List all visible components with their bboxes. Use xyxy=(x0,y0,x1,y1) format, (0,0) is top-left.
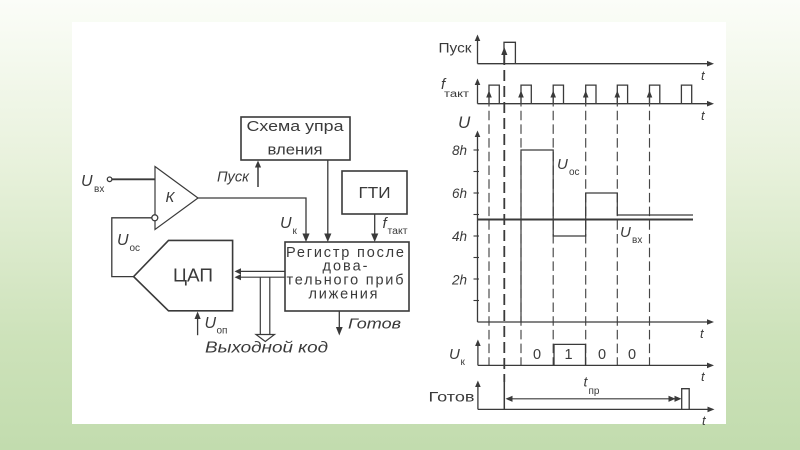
svg-text:U: U xyxy=(557,156,568,173)
svg-text:6h: 6h xyxy=(452,186,467,201)
svg-text:ГТИ: ГТИ xyxy=(359,185,391,202)
svg-text:U: U xyxy=(458,113,471,132)
svg-text:2h: 2h xyxy=(451,273,467,288)
svg-text:ЦАП: ЦАП xyxy=(173,266,213,286)
svg-text:вления: вления xyxy=(268,142,323,159)
svg-text:4h: 4h xyxy=(452,229,467,244)
svg-text:Схема упра: Схема упра xyxy=(247,118,345,135)
svg-text:1: 1 xyxy=(564,347,572,363)
svg-text:Выходной код: Выходной код xyxy=(205,340,328,357)
svg-text:вх: вх xyxy=(94,184,104,195)
svg-text:Готов: Готов xyxy=(429,389,475,405)
svg-text:8h: 8h xyxy=(452,143,467,158)
svg-text:К: К xyxy=(166,189,176,206)
svg-text:оп: оп xyxy=(217,326,228,337)
svg-text:лижения: лижения xyxy=(309,287,378,303)
svg-text:Готов: Готов xyxy=(348,317,402,333)
svg-text:U: U xyxy=(205,315,217,332)
svg-text:U: U xyxy=(117,232,129,249)
svg-text:такт: такт xyxy=(444,89,470,100)
svg-text:такт: такт xyxy=(388,226,408,237)
svg-text:U: U xyxy=(620,224,631,241)
svg-text:Пуск: Пуск xyxy=(439,41,472,56)
svg-text:0: 0 xyxy=(628,347,636,363)
svg-text:U: U xyxy=(449,346,460,363)
svg-text:вх: вх xyxy=(632,235,642,246)
svg-text:пр: пр xyxy=(589,386,600,397)
svg-text:к: к xyxy=(461,357,466,368)
svg-text:0: 0 xyxy=(598,347,606,363)
svg-text:ос: ос xyxy=(130,243,141,254)
svg-text:U: U xyxy=(81,173,93,190)
svg-text:к: к xyxy=(293,226,298,237)
svg-text:U: U xyxy=(280,215,292,232)
svg-text:0: 0 xyxy=(533,347,541,363)
svg-text:Пуск: Пуск xyxy=(217,170,250,186)
svg-text:ос: ос xyxy=(569,167,580,178)
